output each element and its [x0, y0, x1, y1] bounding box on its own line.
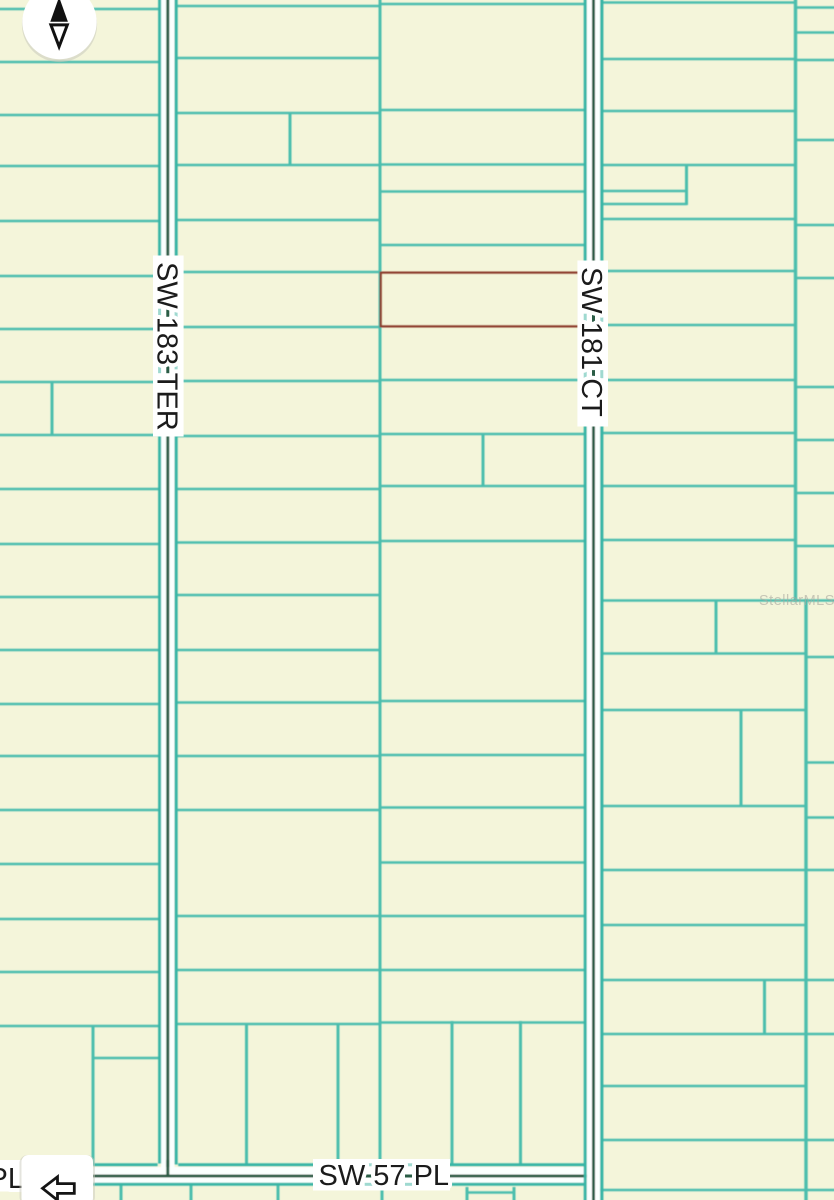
svg-text:SW 181 CT: SW 181 CT — [575, 267, 607, 417]
svg-text:StellarMLS: StellarMLS — [759, 593, 834, 609]
svg-text:SW 57 PL: SW 57 PL — [319, 1160, 450, 1192]
svg-text:SW 183 TER: SW 183 TER — [150, 262, 182, 431]
